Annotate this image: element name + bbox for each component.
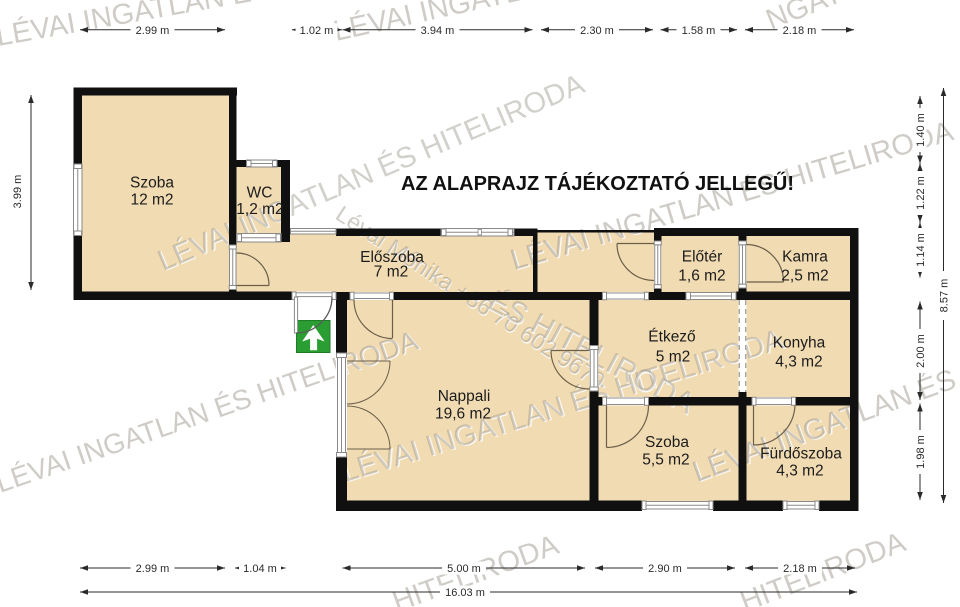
svg-text:Szoba: Szoba [130,175,174,192]
svg-text:Előtér: Előtér [682,249,723,266]
svg-text:1.14 m: 1.14 m [915,233,927,267]
svg-text:AZ ALAPRAJZ TÁJÉKOZTATÓ JELLEG: AZ ALAPRAJZ TÁJÉKOZTATÓ JELLEGŰ! [401,171,794,195]
svg-text:8.57 m: 8.57 m [939,279,951,313]
svg-text:7 m2: 7 m2 [374,264,408,281]
svg-text:2.99 m: 2.99 m [136,563,170,575]
svg-text:2.18 m: 2.18 m [783,563,817,575]
svg-text:1.04 m: 1.04 m [243,563,277,575]
svg-text:3.94 m: 3.94 m [421,25,455,37]
svg-text:1,2 m2: 1,2 m2 [236,201,283,218]
svg-text:Fürdőszoba: Fürdőszoba [760,446,842,463]
svg-text:2,5 m2: 2,5 m2 [781,268,828,285]
svg-text:19,6 m2: 19,6 m2 [435,406,491,423]
svg-text:5,5 m2: 5,5 m2 [642,452,689,469]
svg-text:12 m2: 12 m2 [130,192,173,209]
svg-text:5 m2: 5 m2 [656,349,690,366]
svg-text:Konyha: Konyha [773,335,826,352]
svg-text:3.99 m: 3.99 m [12,175,24,209]
svg-text:Kamra: Kamra [782,249,828,266]
svg-text:1.02 m: 1.02 m [300,25,334,37]
svg-text:5.00 m: 5.00 m [447,563,481,575]
svg-text:Szoba: Szoba [645,434,689,451]
svg-text:Nappali: Nappali [438,388,491,405]
svg-text:1,6 m2: 1,6 m2 [678,268,725,285]
svg-text:2.90 m: 2.90 m [648,563,682,575]
svg-text:16.03 m: 16.03 m [445,587,485,599]
svg-text:2.99 m: 2.99 m [136,25,170,37]
svg-text:4,3 m2: 4,3 m2 [776,463,823,480]
svg-text:WC: WC [247,185,273,202]
svg-text:1.98 m: 1.98 m [915,435,927,469]
svg-text:2.30 m: 2.30 m [580,25,614,37]
svg-text:1.40 m: 1.40 m [915,113,927,147]
svg-text:4,3 m2: 4,3 m2 [775,354,822,371]
svg-text:Étkező: Étkező [648,329,695,346]
svg-text:2.00 m: 2.00 m [915,334,927,368]
svg-text:1.58 m: 1.58 m [682,25,716,37]
svg-text:1.22 m: 1.22 m [915,176,927,210]
svg-text:2.18 m: 2.18 m [783,25,817,37]
